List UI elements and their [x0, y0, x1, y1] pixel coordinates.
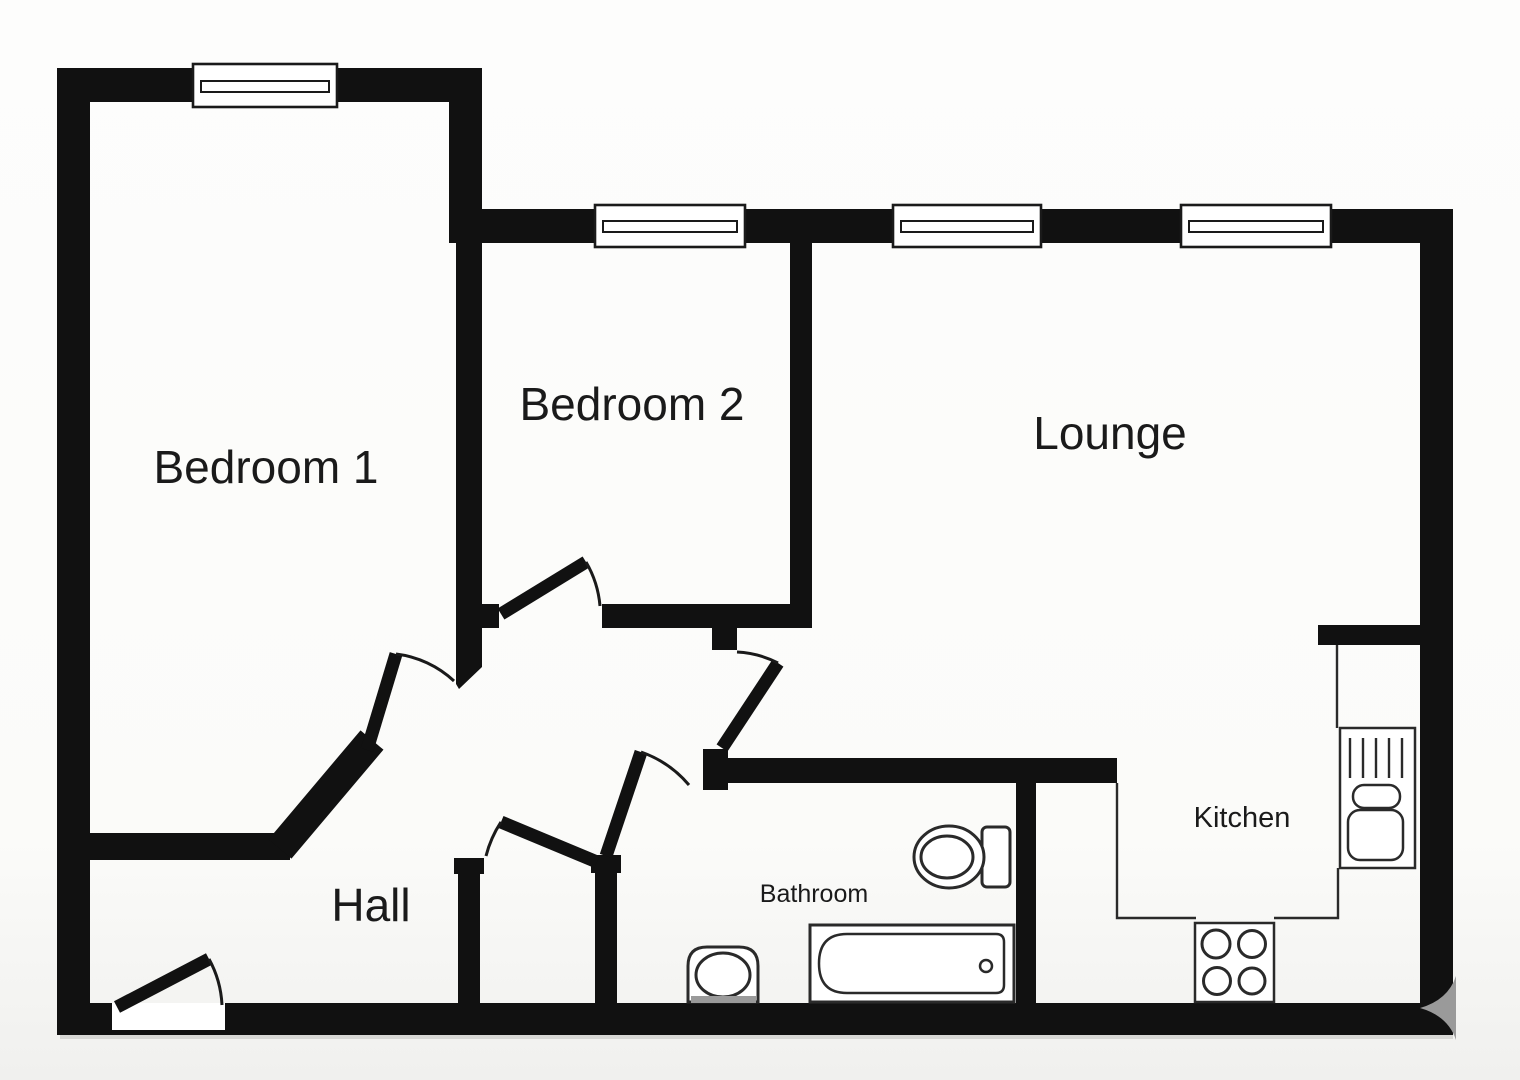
sink-bowl — [1348, 810, 1403, 860]
bathtub-inner — [819, 934, 1004, 993]
bathroom-door-leaf — [606, 752, 641, 856]
bedroom1-door-leaf — [367, 654, 396, 750]
wall-bathroom-top — [705, 758, 1117, 783]
toilet-pan-inner — [921, 836, 973, 878]
wall-corridor-stub — [712, 628, 737, 650]
room-label-hall: Hall — [331, 879, 410, 931]
floor-plan: Bedroom 1 Bedroom 2 Lounge Hall Bathroom… — [0, 0, 1520, 1080]
wall-bathroom-right — [1016, 783, 1036, 1003]
bathroom-door — [606, 752, 689, 856]
window-bedroom2 — [595, 205, 745, 247]
kitchen-counter-right-edge — [1274, 868, 1338, 918]
washbasin-base — [691, 996, 756, 1003]
entry-door-leaf — [117, 959, 209, 1007]
hob-burner — [1204, 968, 1231, 995]
floor-plan-canvas: Bedroom 1 Bedroom 2 Lounge Hall Bathroom… — [0, 0, 1520, 1080]
room-label-bathroom: Bathroom — [760, 880, 868, 908]
toilet-icon — [914, 826, 1010, 888]
corridor-door-swing-arc — [737, 652, 778, 663]
wall-closet-right-stub — [595, 872, 617, 1003]
hob-icon — [1195, 923, 1274, 1002]
bedroom2-door-swing-arc — [586, 562, 600, 606]
bottom-wall-shadow — [60, 1035, 1453, 1039]
outer-wall-left — [57, 68, 90, 1035]
wall-bedroom1-right — [456, 243, 482, 663]
wall-closet-left-stub-cap — [454, 858, 484, 874]
washbasin-icon — [688, 947, 758, 1003]
toilet-cistern — [982, 827, 1010, 887]
wall-bedroom1-right-diagonal-cap — [456, 663, 482, 689]
window-bedroom1 — [193, 64, 337, 107]
window-lounge-2 — [1181, 205, 1331, 247]
bathtub-drain — [980, 960, 992, 972]
bedroom1-door-swing-arc — [396, 654, 454, 681]
wall-bathroom-door-jamb — [703, 749, 728, 790]
wall-closet-left-stub — [458, 872, 480, 1003]
room-label-bedroom2: Bedroom 2 — [519, 378, 744, 430]
entry-door-swing-arc — [209, 959, 222, 1005]
wall-bedroom2-lounge-divider — [790, 243, 812, 628]
entry-door — [117, 959, 222, 1007]
wall-kitchen-stub — [1318, 625, 1420, 645]
window-glazing — [201, 81, 329, 92]
wall-bedroom1-diagonal — [280, 740, 372, 849]
room-label-kitchen: Kitchen — [1194, 802, 1291, 834]
window-glazing — [603, 221, 737, 232]
kitchen-sink-icon — [1340, 728, 1415, 868]
outer-wall-bottom — [57, 1003, 1453, 1035]
window-glazing — [1189, 221, 1323, 232]
window-lounge-1 — [893, 205, 1041, 247]
kitchen-counter-left-edge — [1117, 783, 1196, 918]
window-glazing — [901, 221, 1033, 232]
hob-burner — [1202, 930, 1230, 958]
washbasin-bowl — [696, 953, 750, 997]
wall-bedroom2-bottom — [602, 604, 812, 628]
closet-door-swing-arc — [486, 822, 501, 856]
bathtub-icon — [810, 925, 1014, 1002]
bedroom2-door — [501, 562, 600, 614]
wall-bedroom2-door-jamb — [482, 604, 499, 628]
bedroom2-door-leaf — [501, 562, 586, 614]
bedroom1-door — [367, 654, 454, 750]
hob-burner — [1239, 931, 1266, 958]
closet-door — [486, 822, 597, 862]
room-label-lounge: Lounge — [1033, 407, 1187, 459]
outer-wall-right — [1420, 209, 1453, 1035]
corridor-door-leaf — [722, 663, 778, 748]
sink-drainer-tray — [1353, 785, 1400, 808]
hob-burner — [1239, 968, 1265, 994]
corridor-door — [722, 652, 778, 748]
closet-door-leaf — [501, 822, 597, 862]
wall-bedroom1-bottom — [90, 833, 290, 860]
bathroom-door-swing-arc — [641, 752, 689, 785]
room-label-bedroom1: Bedroom 1 — [153, 441, 378, 493]
